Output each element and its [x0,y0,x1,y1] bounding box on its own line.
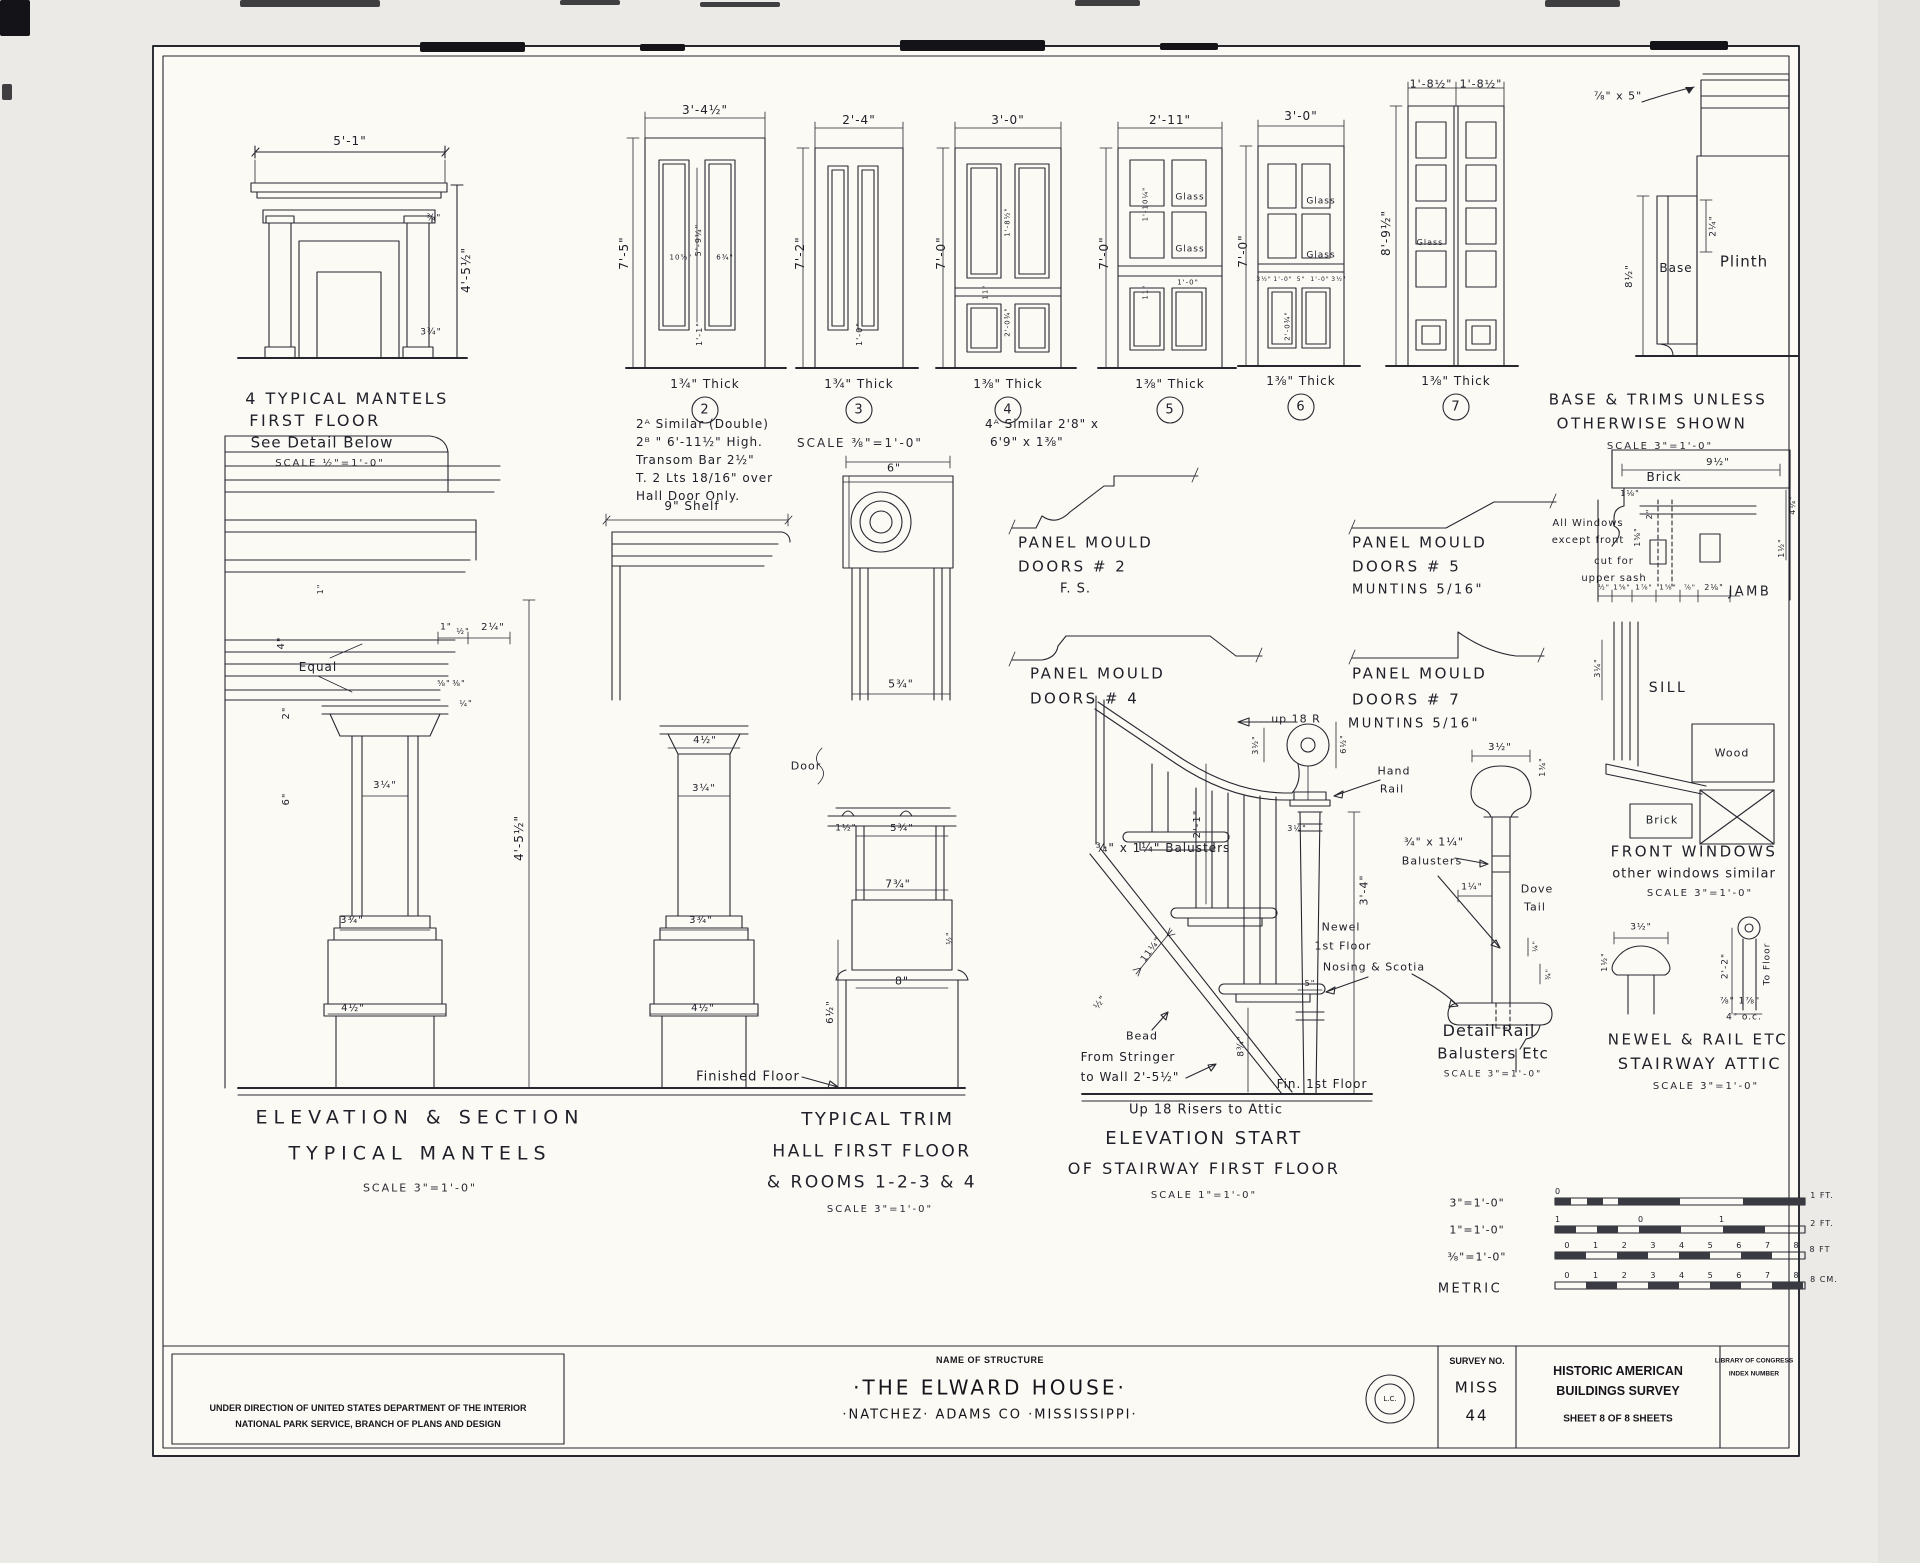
drawing-label: 1" [317,584,325,595]
drawing-label: 7'-0" [1237,234,1249,267]
caption-panel-mould-7: PANEL MOULD [1352,667,1487,682]
drawing-label: METRIC [1438,1283,1502,1296]
drawing-label: 10⅝" [670,255,693,262]
drawing-label: 2'-0¾" [1005,307,1012,336]
drawing-label: Nosing & Scotia [1323,962,1425,973]
drawing-label: ⅝" [437,680,450,688]
drawing-label: DOORS # 7 [1352,693,1461,708]
drawing-label: 9" Shelf [664,500,719,512]
drawing-label: 6" [887,463,901,474]
drawing-label: 2" [1646,509,1654,520]
drawing-label: 5" [1305,980,1316,988]
drawing-label: SCALE 3"=1'-0" [1647,889,1753,899]
drawing-label: 2'-1" [1193,810,1203,839]
drawing-label: 4½" [693,736,717,746]
drawing-label: 4¼" [1789,495,1797,515]
survey-no-label: SURVEY NO. [1449,1356,1504,1366]
drawing-label: To Floor [1764,943,1773,986]
drawing-label: ⅞" [1684,585,1696,592]
drawing-label: Glass [1175,194,1204,203]
drawing-label: ¾" x 1¼" [1404,837,1464,848]
drawing-label: 1'-1" [696,322,704,346]
scan-artifact [640,44,685,51]
drawing-label: 4½" [691,1004,715,1014]
drawing-label: 3¾" [340,916,364,926]
drawing-label: 1'-0" [1310,277,1329,283]
drawing-label: Glass [1175,246,1204,255]
drawing-label: 2¼" [1710,215,1719,237]
drawing-label: 7¾" [885,879,911,890]
drawing-label: SCALE 3"=1'-0" [827,1205,933,1215]
drawing-label: 3¼" [1594,658,1602,678]
drawing-label: 6'9" x 1⅜" [990,436,1064,448]
drawing-label: 2'-2" [1722,953,1731,979]
drawing-label: Rail [1380,784,1404,795]
drawing-label: 1⅜" Thick [1421,375,1490,387]
drawing-label: ⅜" [452,680,465,688]
drawing-label: 4" [277,637,287,650]
drawing-label: Newel [1322,922,1361,933]
drawing-label: 1½" [835,825,857,834]
caption-typical-trim: TYPICAL TRIM [801,1111,954,1129]
drawing-label: 2" [282,707,292,720]
drawing-label: 3¾" [689,916,713,926]
drawing-label: DOORS # 2 [1018,560,1127,575]
drawing-label: MUNTINS 5/16" [1352,584,1484,597]
scan-artifact [420,42,525,52]
drawing-label: ¾" [427,215,442,224]
drawing-label: ⅞" 1⅞" [1720,998,1760,1007]
drawing-label: 1'-8½" [1410,79,1453,90]
drawing-label: 8" [895,976,909,987]
drawing-label: 3½" [1252,735,1260,755]
drawing-label: 1" [440,624,452,633]
drawing-label: up 18 R [1271,714,1321,725]
survey-number: 44 [1465,1407,1488,1424]
drawing-label: 1⅜" Thick [973,378,1042,390]
drawing-label: ¾" x 1¼" Balusters [1096,842,1231,854]
drawing-label: SCALE ⅜"=1'-0" [797,437,923,449]
drawing-label: DOORS # 5 [1352,560,1461,575]
drawing-label: 3½" [1488,743,1512,753]
drawing-label: 4ᴬ Similar 2'8" x [985,418,1099,430]
drawing-label: 7'-0" [935,236,947,269]
drawing-label: 4'-5½" [460,247,472,293]
structure-name: ·THE ELWARD HOUSE· [853,1377,1127,1400]
drawing-label: 5¾" [888,679,914,690]
fine-arts-stamp: L.C. [1383,1395,1396,1403]
drawing-label: Brick [1644,471,1683,483]
drawing-label: 1⅞" [1635,585,1652,592]
drawing-label: All Windows [1552,519,1623,529]
admin-line-2: NATIONAL PARK SERVICE, BRANCH OF PLANS A… [235,1419,501,1429]
drawing-label: SCALE 3"=1'-0" [363,1183,477,1194]
drawing-label: SCALE 1"=1'-0" [1151,1191,1257,1201]
survey-state: MISS [1455,1379,1499,1396]
drawing-label: 3'-0" [1284,110,1317,122]
drawing-label: Hand [1378,766,1411,777]
scan-artifact [1650,41,1728,50]
scan-artifact [900,40,1045,51]
drawing-label: 1st Floor [1315,941,1372,952]
drawing-label: 4'-5½" [513,815,525,861]
drawing-label: JAMB [1729,586,1772,599]
drawing-label: MUNTINS 5/16" [1348,718,1480,731]
drawing-label: 1'-0" [1273,277,1292,283]
drawing-label: Glass [1417,239,1444,247]
scan-artifact [1545,0,1620,7]
caption-base-trims: BASE & TRIMS UNLESS [1549,393,1768,408]
drawing-label: 2 FT. [1810,1220,1834,1228]
drawing-label: 3¼" [1287,825,1307,833]
caption-elevation-start: ELEVATION START [1105,1130,1303,1148]
drawing-label: HALL FIRST FLOOR [772,1144,971,1161]
drawing-label: STAIRWAY ATTIC [1618,1056,1782,1072]
drawing-label: 2ᴬ Similar (Double) [636,418,769,430]
drawing-label: 8 CM. [1810,1276,1838,1284]
drawing-label: 1⅜" Thick [1266,375,1335,387]
drawing-label: Finished Floor [696,1071,800,1084]
drawing-label: 1⅝" [1659,585,1676,592]
drawing-label: Tail [1524,902,1546,913]
drawing-label: ⅜"=1'-0" [1448,1252,1507,1263]
label-layer: 5'-1"4'-5½"¾"3¾"4 TYPICAL MANTELSFIRST F… [0,0,1920,1563]
drawing-label: 1'-8½" [1005,207,1012,236]
drawing-label: Base [1659,262,1692,274]
drawing-label: 8½" [1625,264,1635,288]
drawing-label: 8 FT [1810,1246,1831,1254]
drawing-label: From Stringer [1081,1051,1176,1063]
habs-line-1: HISTORIC AMERICAN [1553,1364,1683,1378]
scan-artifact [560,0,620,5]
caption-front-windows: FRONT WINDOWS [1611,845,1778,860]
scan-artifact [1075,0,1140,6]
caption-detail-rail: Detail Rail [1443,1023,1536,1039]
drawing-label: 6½" [826,1000,836,1024]
caption-panel-mould-4: PANEL MOULD [1030,667,1165,682]
drawing-label: Glass [1306,198,1335,207]
drawing-label: SCALE 3"=1'-0" [1444,1071,1542,1080]
drawing-label: 3¼" [692,784,716,794]
drawing-label: 1⅜" Thick [1135,378,1204,390]
drawing-label: 1½" [1778,538,1786,558]
drawing-label: SILL [1649,681,1688,695]
drawing-label: OTHERWISE SHOWN [1557,417,1748,432]
scan-artifact [700,2,780,7]
drawing-label: Glass [1306,252,1335,261]
drawing-label: 8¾" [1238,1035,1247,1057]
drawing-label: 3'-0" [991,114,1024,126]
drawing-label: except front [1552,536,1625,546]
drawing-label: ½" [1093,994,1109,1011]
drawing-label: DOORS # 4 [1030,692,1139,707]
drawing-label: OF STAIRWAY FIRST FLOOR [1068,1161,1341,1177]
drawing-label: 8'-9½" [1380,210,1392,256]
caption-typical-mantels: 4 TYPICAL MANTELS [245,391,448,407]
caption-panel-mould-5: PANEL MOULD [1352,536,1487,551]
drawing-label: Equal [299,661,338,673]
drawing-label: Up 18 Risers to Attic [1129,1104,1283,1117]
drawing-label: FIRST FLOOR [249,413,380,429]
drawing-label: Fin. 1st Floor [1277,1078,1368,1090]
drawing-label: 3"=1'-0" [1449,1198,1504,1209]
drawing-label: Door [791,761,821,772]
drawing-label: 11" [983,284,990,299]
drawing-label: 3½" [1630,924,1652,933]
drawing-label: SCALE ½"=1'-0" [275,459,385,469]
drawing-label: T. 2 Lts 18/16" over [636,472,773,484]
drawing-label: 6" [282,793,292,806]
drawing-label: to Wall 2'-5½" [1081,1071,1180,1083]
admin-line-1: UNDER DIRECTION OF UNITED STATES DEPARTM… [210,1403,527,1413]
drawing-label: Bead [1126,1031,1158,1042]
drawing-label: 3'-4" [1359,874,1370,905]
drawing-label: 6½" [1340,734,1348,754]
drawing-label: 1'-0" [1177,280,1199,287]
drawing-label: 5'-9¼" [695,224,703,257]
drawing-label: 9½" [1704,458,1732,468]
caption-panel-mould-2: PANEL MOULD [1018,536,1153,551]
drawing-label: 1'-8½" [1460,79,1503,90]
drawing-label: 2'-0¾" [1285,311,1292,340]
drawing-label: 1⅛" [1620,490,1640,498]
caption-newel-rail: NEWEL & RAIL ETC [1608,1033,1788,1048]
drawing-label: 5" [1297,277,1306,283]
drawing-label: 5'-1" [333,135,366,147]
drawing-label: 0 [1555,1188,1561,1196]
drawing-label: SCALE 3"=1'-0" [1607,442,1713,452]
sheet-count: SHEET 8 OF 8 SHEETS [1563,1413,1672,1425]
drawing-label: 1⅝" [1634,527,1642,547]
drawing-label: Plinth [1720,255,1768,270]
drawing-label: 1 [1719,1216,1725,1224]
drawing-label: Balusters [1402,856,1462,867]
drawing-label: 1¾" [1539,757,1547,777]
drawing-label: 1'-0" [856,322,864,346]
name-of-structure-label: NAME OF STRUCTURE [936,1355,1044,1365]
drawing-label: 4" o.c. [1726,1014,1762,1023]
drawing-label: 1 [1555,1216,1561,1224]
drawing-label: ⅞" x 5" [1594,91,1642,102]
door-number-7: 7 [1451,401,1460,414]
drawing-label: Brick [1644,815,1681,826]
loc-line-1: LIBRARY OF CONGRESS [1715,1357,1793,1364]
drawing-label: 2¼" [481,623,505,633]
drawing-label: 0 1 2 3 4 5 6 7 8 [1564,1242,1799,1250]
drawing-label: & ROOMS 1-2-3 & 4 [767,1175,977,1192]
scan-artifact [240,0,380,7]
scan-artifact [2,84,12,100]
drawing-label: 7'-5" [618,236,630,269]
drawing-label: F. S. [1060,583,1091,596]
drawing-label: ¼" [459,700,472,708]
drawing-label: 0 1 2 3 4 5 6 7 8 [1564,1272,1799,1280]
scanned-drawing-page: { "colors": { "ink": "#272730", "paper":… [0,0,1920,1563]
loc-line-2: INDEX NUMBER [1729,1370,1779,1377]
door-number-4: 4 [1003,404,1012,417]
drawing-label: ¼" [1533,940,1540,952]
drawing-label: 11¼" [1140,936,1164,964]
drawing-label: 3'-4½" [682,104,728,116]
drawing-label: TYPICAL MANTELS [288,1145,551,1164]
drawing-label: 1"=1'-0" [1449,1225,1504,1236]
drawing-label: 3¼" [373,781,397,791]
drawing-label: ½" [946,931,954,944]
drawing-label: 5¾" [890,824,914,834]
drawing-label: Balusters Etc [1437,1047,1548,1062]
drawing-label: 2'-11" [1149,114,1191,126]
drawing-label: 1'-10¼" [1143,187,1150,222]
door-number-3: 3 [854,404,863,417]
drawing-label: 2'-4" [842,114,875,126]
drawing-label: 7'-0" [1098,236,1110,269]
drawing-label: other windows similar [1612,868,1776,881]
drawing-label: 7'-2" [794,236,806,269]
drawing-label: 1¼" [1461,884,1483,893]
scan-artifact [1160,43,1218,50]
door-number-5: 5 [1165,404,1174,417]
drawing-label: ½" [1598,585,1610,592]
drawing-label: Wood [1715,748,1750,759]
door-number-6: 6 [1296,401,1305,414]
drawing-label: Transom Bar 2½" [636,454,755,466]
drawing-label: ½" [456,628,469,636]
door-number-2: 2 [700,404,709,417]
drawing-label: 3½" [1256,277,1271,283]
drawing-label: 3½" [1331,277,1346,283]
drawing-label: 1½" [1601,952,1609,972]
habs-line-2: BUILDINGS SURVEY [1556,1384,1679,1398]
drawing-label: Dove [1521,884,1553,895]
drawing-label: 1¾" Thick [670,378,739,390]
drawing-label: ¾" [1546,968,1553,980]
drawing-label: 6¾" [716,255,733,262]
drawing-label: 1 FT. [1810,1192,1834,1200]
scan-artifact [0,0,30,36]
structure-location: ·NATCHEZ· ADAMS CO ·MISSISSIPPI· [842,1409,1137,1424]
drawing-label: 0 [1638,1216,1644,1224]
drawing-label: cut for [1594,557,1634,567]
drawing-label: 2ᴮ " 6'-11½" High. [636,436,763,448]
drawing-label: 3¾" [420,329,442,338]
drawing-label: upper sash [1581,574,1646,584]
drawing-label: 11" [1143,284,1150,299]
caption-elevation-section: ELEVATION & SECTION [256,1109,585,1128]
drawing-label: SCALE 3"=1'-0" [1653,1082,1759,1092]
drawing-label: See Detail Below [251,436,394,451]
drawing-label: 2⅛" [1704,584,1724,592]
drawing-label: 4½" [341,1004,365,1014]
drawing-label: 1¾" Thick [824,378,893,390]
drawing-label: 1⅝" [1613,585,1630,592]
